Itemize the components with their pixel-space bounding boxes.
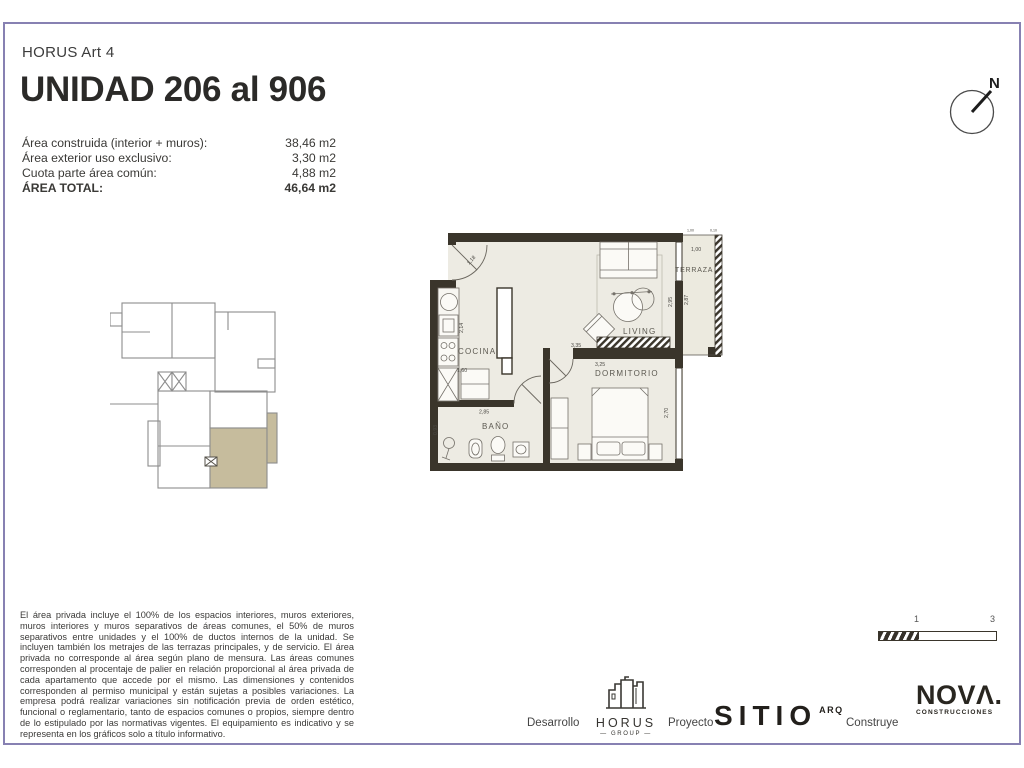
area-value: 3,30 m2 [292, 151, 336, 166]
project-name: HORUS Art 4 [22, 44, 115, 61]
area-row: Área construida (interior + muros): 38,4… [22, 136, 336, 151]
horus-group-logo: HORUS — GROUP — [588, 676, 664, 737]
nova-construcciones-logo: NOVΛ. CONSTRUCCIONES [916, 682, 1003, 716]
area-total-row: ÁREA TOTAL: 46,64 m2 [22, 181, 336, 196]
area-value: 38,46 m2 [285, 136, 336, 151]
room-label-terraza: TERRAZA [675, 267, 713, 274]
nova-logo-subtext: CONSTRUCCIONES [916, 709, 1003, 716]
unit-marker-icon [205, 457, 217, 466]
dim-living-width: 3,35 [571, 343, 581, 349]
scale-tick-1: 1 [914, 614, 919, 624]
sitio-arq-logo: SITIOARQ [714, 700, 842, 732]
area-row: Cuota parte área común: 4,88 m2 [22, 166, 336, 181]
dim-terraza-height: 2,87 [684, 295, 690, 305]
construye-label: Construye [846, 717, 898, 729]
scale-bar-filled [879, 632, 919, 640]
area-value: 46,64 m2 [285, 181, 337, 196]
area-label: ÁREA TOTAL: [22, 181, 103, 196]
highlighted-unit [210, 413, 277, 488]
scale-tick-3: 3 [990, 614, 995, 624]
floor-plan-sheet: HORUS Art 4 UNIDAD 206 al 906 Área const… [0, 0, 1024, 768]
horus-logo-subtext: — GROUP — [588, 731, 664, 737]
sitio-logo-text: SITIO [714, 700, 817, 731]
building-key-plan [110, 286, 290, 494]
area-label: Área exterior uso exclusivo: [22, 151, 172, 166]
room-label-dormitorio: DORMITORIO [595, 369, 659, 378]
desarrollo-label: Desarrollo [527, 717, 579, 729]
area-label: Área construida (interior + muros): [22, 136, 207, 151]
sitio-logo-subtext: ARQ [819, 705, 844, 715]
area-row: Área exterior uso exclusivo: 3,30 m2 [22, 151, 336, 166]
dim-living-height: 2,95 [668, 297, 674, 307]
dim-dorm-height: 2,70 [664, 408, 670, 418]
dim-hall-width: 2,85 [479, 410, 489, 416]
area-value: 4,88 m2 [292, 166, 336, 181]
horus-group-logo-icon [603, 676, 649, 710]
area-label: Cuota parte área común: [22, 166, 157, 181]
elevator-core-icon [158, 372, 186, 391]
north-label: N [989, 75, 1000, 92]
room-label-bano: BAÑO [482, 422, 509, 431]
room-label-cocina: COCINA [458, 347, 496, 356]
nova-logo-text: NOVΛ. [916, 682, 1003, 708]
scale-bar-track [878, 631, 997, 641]
north-compass-icon: N [935, 60, 1024, 150]
room-label-living: LIVING [623, 327, 656, 336]
dim-terraza-width: 1,00 [691, 247, 701, 253]
dim-railing: 0,10 [710, 229, 717, 233]
page-title: UNIDAD 206 al 906 [20, 70, 326, 110]
areas-table: Área construida (interior + muros): 38,4… [22, 136, 336, 196]
dim-terraza-top: 1,00 [687, 229, 694, 233]
unit-floor-plan: COCINA LIVING TERRAZA DORMITORIO BAÑO 1,… [425, 215, 735, 495]
dim-dorm-width: 3,25 [595, 362, 605, 368]
legal-note: El área privada incluye el 100% de los e… [20, 610, 354, 740]
dim-kitchen-height: 2,14 [459, 323, 465, 333]
dim-kitchen-width: 1,60 [457, 368, 467, 374]
dim-bath-height: 0,93 [433, 425, 439, 435]
proyecto-label: Proyecto [668, 717, 713, 729]
horus-logo-text: HORUS [588, 716, 664, 730]
scale-bar: 1 3 [878, 614, 1000, 646]
